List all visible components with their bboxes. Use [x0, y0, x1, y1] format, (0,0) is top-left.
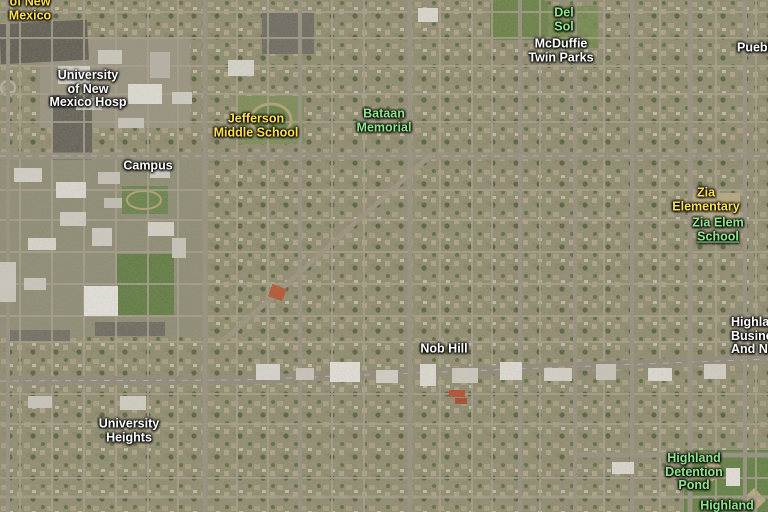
- label-del-sol-line-1: Del: [554, 7, 573, 21]
- label-zia-elementary: ZiaElementary: [672, 187, 739, 214]
- label-bataan-memorial: BataanMemorial: [357, 108, 412, 135]
- label-zia-elementary-line-1: Zia: [672, 187, 739, 201]
- map-viewport: of NewMexicoUniversityof NewMexico HospC…: [0, 0, 768, 512]
- label-jefferson-middle-school-line-1: Jefferson: [214, 113, 299, 127]
- label-highland-line-1: Highland: [700, 499, 753, 512]
- label-campus: Campus: [123, 159, 172, 173]
- label-university-of-new-mexico-hosp-line-1: University: [49, 69, 126, 83]
- label-zia-elementary-line-2: Elementary: [672, 200, 739, 214]
- label-of-new-mexico-line-2: Mexico: [9, 9, 51, 23]
- label-campus-line-1: Campus: [123, 159, 172, 173]
- label-highland-business-line-2: Business: [731, 329, 768, 343]
- label-highland-business-line-3: And N: [731, 343, 768, 357]
- label-zia-elem-school[interactable]: Zia ElemSchool: [692, 217, 743, 244]
- label-pueblo: Pueblo: [737, 41, 768, 55]
- label-bataan-memorial-line-1: Bataan: [357, 108, 412, 122]
- label-highland-detention-pond-line-1: Highland: [665, 452, 723, 466]
- label-highland: Highland: [700, 499, 753, 512]
- label-zia-elem-school-line-2: School: [692, 230, 743, 244]
- label-university-of-new-mexico-hosp: Universityof NewMexico Hosp: [49, 69, 126, 110]
- label-jefferson-middle-school-line-2: Middle School: [214, 126, 299, 140]
- label-university-heights: UniversityHeights: [99, 418, 159, 445]
- label-of-new-mexico: of NewMexico: [9, 0, 51, 23]
- label-highland-business: HighlandBusinessAnd N: [731, 316, 768, 357]
- label-bataan-memorial-line-2: Memorial: [357, 121, 412, 135]
- label-mcduffie-twin-parks-line-2: Twin Parks: [528, 51, 593, 65]
- label-pueblo-line-1: Pueblo: [737, 41, 768, 55]
- label-nob-hill: Nob Hill: [420, 342, 467, 356]
- label-del-sol: DelSol: [554, 7, 573, 34]
- label-university-heights-line-1: University: [99, 418, 159, 432]
- label-highland-detention-pond-line-3: Pond: [665, 479, 723, 493]
- label-highland-business-line-1: Highland: [731, 316, 768, 330]
- label-university-of-new-mexico-hosp-line-3: Mexico Hosp: [49, 96, 126, 110]
- label-highland-detention-pond-line-2: Detention: [665, 465, 723, 479]
- label-university-of-new-mexico-hosp-line-2: of New: [49, 82, 126, 96]
- label-mcduffie-twin-parks: McDuffieTwin Parks: [528, 38, 593, 65]
- label-mcduffie-twin-parks-line-1: McDuffie: [528, 38, 593, 52]
- label-jefferson-middle-school: JeffersonMiddle School: [214, 113, 299, 140]
- label-zia-elem-school-line-1: Zia Elem: [692, 217, 743, 231]
- label-university-heights-line-2: Heights: [99, 431, 159, 445]
- label-nob-hill-line-1: Nob Hill: [420, 342, 467, 356]
- label-highland-detention-pond: HighlandDetentionPond: [665, 452, 723, 493]
- label-del-sol-line-2: Sol: [554, 20, 573, 34]
